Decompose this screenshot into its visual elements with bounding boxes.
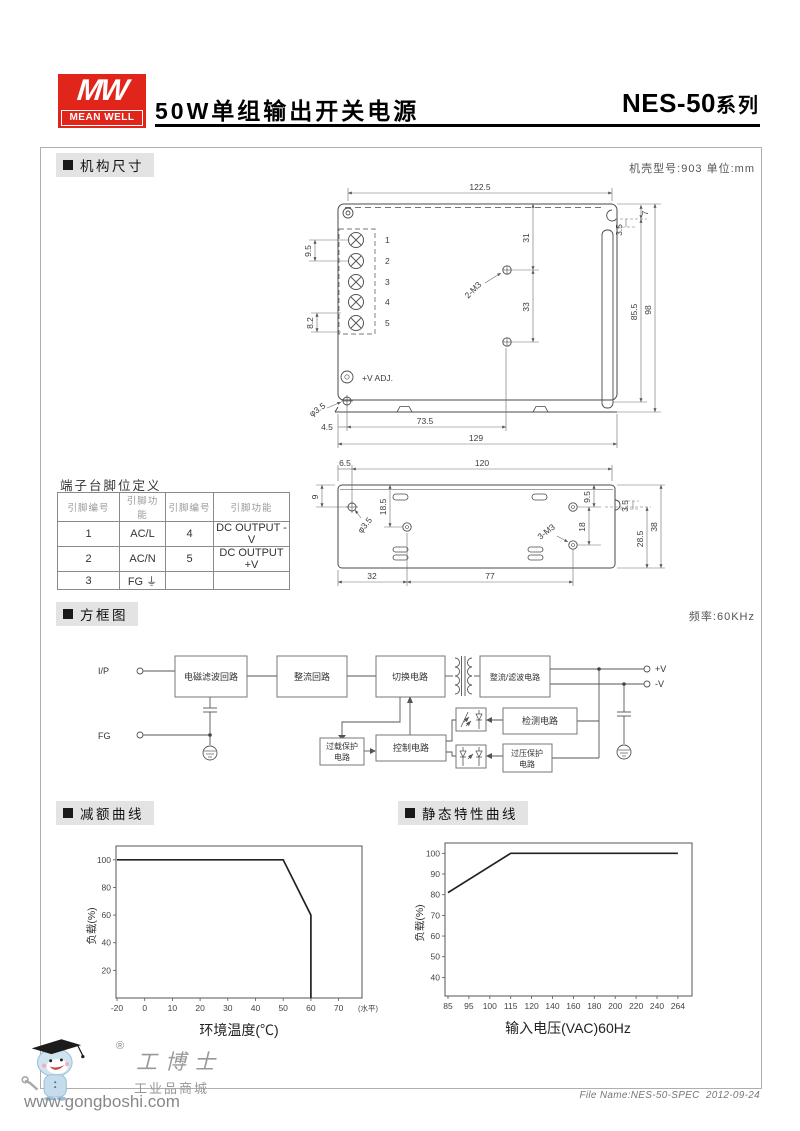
plot-frame [445, 843, 692, 996]
table-row: 3 FG ⏚ [58, 572, 290, 590]
title-underline [155, 124, 760, 127]
svg-text:32: 32 [367, 571, 377, 581]
y-tick-label: 20 [102, 965, 112, 975]
svg-text:38: 38 [649, 522, 659, 532]
y-axis-label: 负载(%) [85, 907, 98, 944]
col-header: 引脚功能 [214, 493, 290, 522]
data-line [117, 860, 311, 998]
x-tick-label: 20 [195, 1003, 205, 1013]
y-tick-label: 80 [431, 890, 441, 900]
x-tick-label: 140 [545, 1001, 559, 1011]
svg-text:2: 2 [385, 256, 390, 266]
svg-text:3-M3: 3-M3 [535, 522, 557, 542]
data-line [448, 853, 678, 892]
svg-text:整流回路: 整流回路 [294, 671, 330, 682]
vminus-label: -V [655, 679, 664, 689]
col-header: 引脚编号 [166, 493, 214, 522]
svg-text:9.5: 9.5 [582, 491, 592, 503]
section-marker [63, 808, 73, 818]
svg-text:整流/滤波电路: 整流/滤波电路 [490, 672, 540, 682]
x-tick-label: 160 [566, 1001, 580, 1011]
file-name-note: File Name:NES-50-SPEC 2012-09-24 [420, 1090, 760, 1101]
x-tick-label: 30 [223, 1003, 233, 1013]
x-tick-label: -20 [111, 1003, 124, 1013]
y-axis-label: 负载(%) [415, 904, 426, 941]
y-tick-label: 40 [102, 938, 112, 948]
x-tick-label: 115 [504, 1001, 518, 1011]
table-row: 2 AC/N 5 DC OUTPUT +V [58, 547, 290, 572]
series-suffix: 系列 [716, 89, 760, 118]
svg-text:18: 18 [577, 522, 587, 532]
svg-text:33: 33 [521, 302, 531, 312]
section-marker [405, 808, 415, 818]
input-label: I/P [98, 666, 109, 676]
series-name: NES-50 [622, 88, 716, 119]
mech-drawing-bottom-view: 6.5 120 9 18.5 φ3.5 3-M3 9.5 18 3.5 28.5… [295, 458, 700, 598]
page-title: 50W单组输出开关电源 [155, 92, 419, 126]
svg-text:切换电路: 切换电路 [392, 671, 428, 682]
logo-brand-text: MEAN WELL [61, 110, 143, 126]
mech-drawing-top-view: 1 2 3 4 5 [295, 180, 700, 458]
derating-chart: 负载(%) 环境温度(℃) -20010203040506070(水平)2040… [85, 838, 385, 1043]
section-block-title: 方框图 [56, 602, 138, 626]
x-tick-label: 200 [608, 1001, 622, 1011]
watermark-brand: 工博士 [136, 1046, 223, 1076]
x-tick-label: 95 [464, 1001, 474, 1011]
svg-text:1: 1 [385, 235, 390, 245]
x-tick-label: 180 [587, 1001, 601, 1011]
frequency-note: 频率:60KHz [600, 608, 755, 624]
datasheet-page: MW MEAN WELL 50W单组输出开关电源 NES-50系列 机构尺寸 机… [0, 0, 800, 1131]
static-characteristic-chart: 负载(%) 输入电压(VAC)60Hz 85951001151201401601… [415, 838, 715, 1043]
x-axis-label: 环境温度(℃) [199, 1022, 278, 1038]
registered-mark: ® [116, 1040, 124, 1052]
logo-mw-text: MW [59, 76, 144, 106]
y-tick-label: 100 [97, 855, 111, 865]
svg-text:18.5: 18.5 [378, 498, 388, 515]
dimension-labels: 6.5 120 9 18.5 φ3.5 3-M3 9.5 18 3.5 28.5… [310, 458, 659, 581]
svg-text:122.5: 122.5 [469, 182, 491, 192]
section-static-title: 静态特性曲线 [398, 801, 528, 825]
x-tick-label: 220 [629, 1001, 643, 1011]
section-marker [63, 160, 73, 170]
svg-text:5: 5 [385, 318, 390, 328]
svg-text:98: 98 [643, 305, 653, 315]
x-axis-suffix: (水平) [358, 1003, 378, 1013]
section-mech-title: 机构尺寸 [56, 153, 154, 177]
svg-text:85.5: 85.5 [629, 303, 639, 320]
block-diagram: I/P FG 电磁滤波回路 整流回路 切换电路 整流/滤波电路 过载保护 电路 … [90, 640, 690, 790]
svg-text:电路: 电路 [334, 752, 350, 762]
y-tick-label: 60 [102, 910, 112, 920]
y-tick-label: 90 [431, 869, 441, 879]
x-tick-label: 40 [251, 1003, 261, 1013]
watermark-url: www.gongboshi.com [24, 1092, 180, 1112]
fg-label: FG [98, 731, 111, 741]
dimension-labels: 122.5 98 85.5 7 3.5 31 33 2-M3 9.5 8.2 +… [303, 182, 653, 443]
svg-text:检测电路: 检测电路 [522, 715, 558, 726]
svg-text:129: 129 [469, 433, 483, 443]
table-row: 1 AC/L 4 DC OUTPUT -V [58, 522, 290, 547]
y-tick-label: 100 [426, 848, 440, 858]
svg-text:6.5: 6.5 [339, 458, 351, 468]
section-marker [63, 609, 73, 619]
col-header: 引脚功能 [120, 493, 166, 522]
y-tick-label: 40 [431, 972, 441, 982]
svg-text:3.5: 3.5 [614, 224, 624, 236]
svg-text:过载保护: 过载保护 [326, 741, 358, 751]
transformer-icon [455, 656, 472, 696]
terminal-block [339, 229, 375, 334]
x-tick-label: 120 [525, 1001, 539, 1011]
svg-text:77: 77 [485, 571, 495, 581]
svg-text:φ3.5: φ3.5 [307, 400, 327, 418]
pin-numbers: 1 2 3 4 5 [385, 235, 390, 328]
x-tick-label: 100 [483, 1001, 497, 1011]
svg-text:31: 31 [521, 233, 531, 243]
meanwell-logo: MW MEAN WELL [58, 74, 146, 128]
table-header-row: 引脚编号 引脚功能 引脚编号 引脚功能 [58, 493, 290, 522]
case-model-note: 机壳型号:903 单位:mm [480, 160, 755, 176]
y-tick-label: 60 [431, 931, 441, 941]
svg-text:120: 120 [475, 458, 489, 468]
x-tick-label: 264 [671, 1001, 685, 1011]
vplus-label: +V [655, 664, 666, 674]
x-tick-label: 10 [168, 1003, 178, 1013]
x-tick-label: 240 [650, 1001, 664, 1011]
svg-text:控制电路: 控制电路 [393, 742, 429, 753]
svg-text:28.5: 28.5 [635, 530, 645, 547]
svg-text:8.2: 8.2 [305, 317, 315, 329]
svg-text:电磁滤波回路: 电磁滤波回路 [184, 671, 238, 682]
svg-text:过压保护: 过压保护 [511, 748, 543, 758]
series-title: NES-50系列 [622, 88, 760, 119]
x-tick-label: 0 [142, 1003, 147, 1013]
svg-text:3.5: 3.5 [620, 500, 630, 512]
svg-text:9: 9 [310, 494, 320, 499]
svg-text:电路: 电路 [519, 759, 535, 769]
y-tick-label: 50 [431, 952, 441, 962]
y-tick-label: 80 [102, 882, 112, 892]
section-derating-title: 减额曲线 [56, 801, 154, 825]
x-axis-label: 输入电压(VAC)60Hz [505, 1020, 631, 1036]
svg-text:φ3.5: φ3.5 [355, 515, 374, 535]
x-tick-label: 60 [306, 1003, 316, 1013]
svg-text:9.5: 9.5 [303, 245, 313, 257]
svg-text:2-M3: 2-M3 [462, 279, 483, 300]
x-tick-label: 70 [334, 1003, 344, 1013]
svg-text:73.5: 73.5 [417, 416, 434, 426]
svg-text:+V ADJ.: +V ADJ. [362, 373, 393, 383]
y-tick-label: 70 [431, 910, 441, 920]
svg-text:3: 3 [385, 277, 390, 287]
svg-text:7: 7 [640, 210, 650, 215]
terminal-table: 引脚编号 引脚功能 引脚编号 引脚功能 1 AC/L 4 DC OUTPUT -… [57, 492, 290, 590]
x-tick-label: 50 [278, 1003, 288, 1013]
plot-frame [116, 846, 362, 998]
x-tick-label: 85 [443, 1001, 453, 1011]
col-header: 引脚编号 [58, 493, 120, 522]
svg-text:4: 4 [385, 297, 390, 307]
svg-text:4.5: 4.5 [321, 422, 333, 432]
